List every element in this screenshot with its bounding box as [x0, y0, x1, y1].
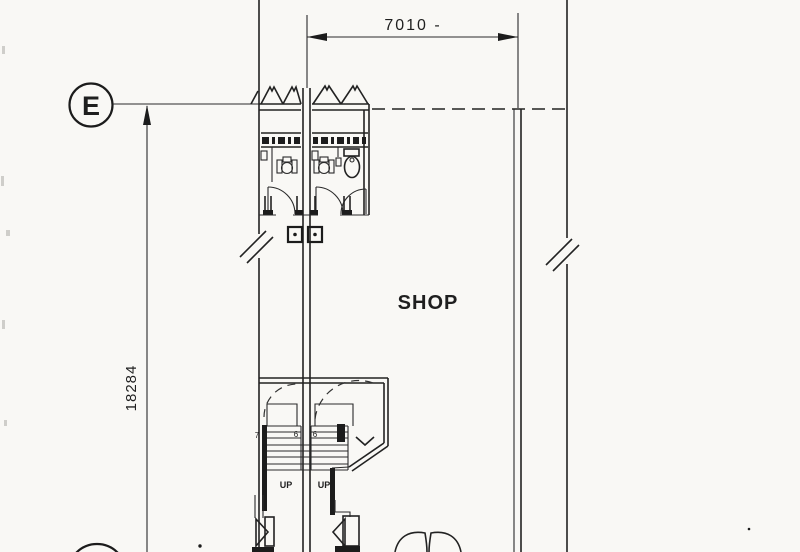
tread-count-right-edge: 7	[341, 426, 346, 435]
tread-count-left: 6	[294, 430, 299, 439]
wc-fixture-left	[277, 157, 297, 174]
structural-columns	[288, 227, 322, 242]
grid-bubble-e: E	[70, 84, 260, 127]
horizontal-dimension-7010: 7010 -	[307, 13, 518, 108]
vanity-band	[261, 133, 368, 147]
storefront-details	[252, 495, 461, 552]
wc-fixture-right-oval	[336, 149, 360, 178]
stair-treads	[262, 426, 348, 470]
floor-plan-page: E 18284 7010 -	[0, 0, 800, 552]
wall-break-symbol-right	[546, 239, 579, 271]
cubicle-fixture	[312, 151, 318, 160]
toilet-bottom-wall	[259, 196, 369, 215]
entrance-double-door-swing	[395, 532, 461, 552]
pilaster-right	[333, 500, 360, 552]
dimension-arrow-right-icon	[498, 33, 518, 41]
stair-up-label-right: UP	[318, 480, 331, 490]
stair-door-swing-right	[315, 381, 378, 419]
tread-count-left-edge: 7	[255, 431, 260, 440]
toilet-door-swings	[268, 187, 366, 214]
cubicle-fixture	[261, 151, 267, 160]
grid-bubble-label: E	[82, 91, 100, 121]
pilaster-left	[252, 495, 274, 552]
grid-bubble-partial	[68, 544, 126, 552]
vertical-dimension-label: 18284	[123, 365, 140, 412]
tread-count-right: 6	[313, 430, 318, 439]
stair-door-swing-left	[264, 384, 297, 417]
vertical-dimension-18284: 18284	[123, 105, 151, 552]
stair-direction-arrow-icon	[356, 437, 374, 445]
wall-break-symbol-left	[240, 231, 273, 263]
floor-plan-drawing: E 18284 7010 -	[0, 0, 800, 552]
stair-up-label-left: UP	[280, 480, 293, 490]
dimension-arrow-up-icon	[143, 105, 151, 125]
horizontal-dimension-label: 7010 -	[384, 17, 441, 34]
staircase: 7 6 6 7 UP UP	[255, 378, 388, 515]
dimension-arrow-left-icon	[307, 33, 327, 41]
walls	[240, 0, 579, 552]
scan-noise	[1, 46, 750, 548]
room-label-shop: SHOP	[398, 292, 459, 314]
